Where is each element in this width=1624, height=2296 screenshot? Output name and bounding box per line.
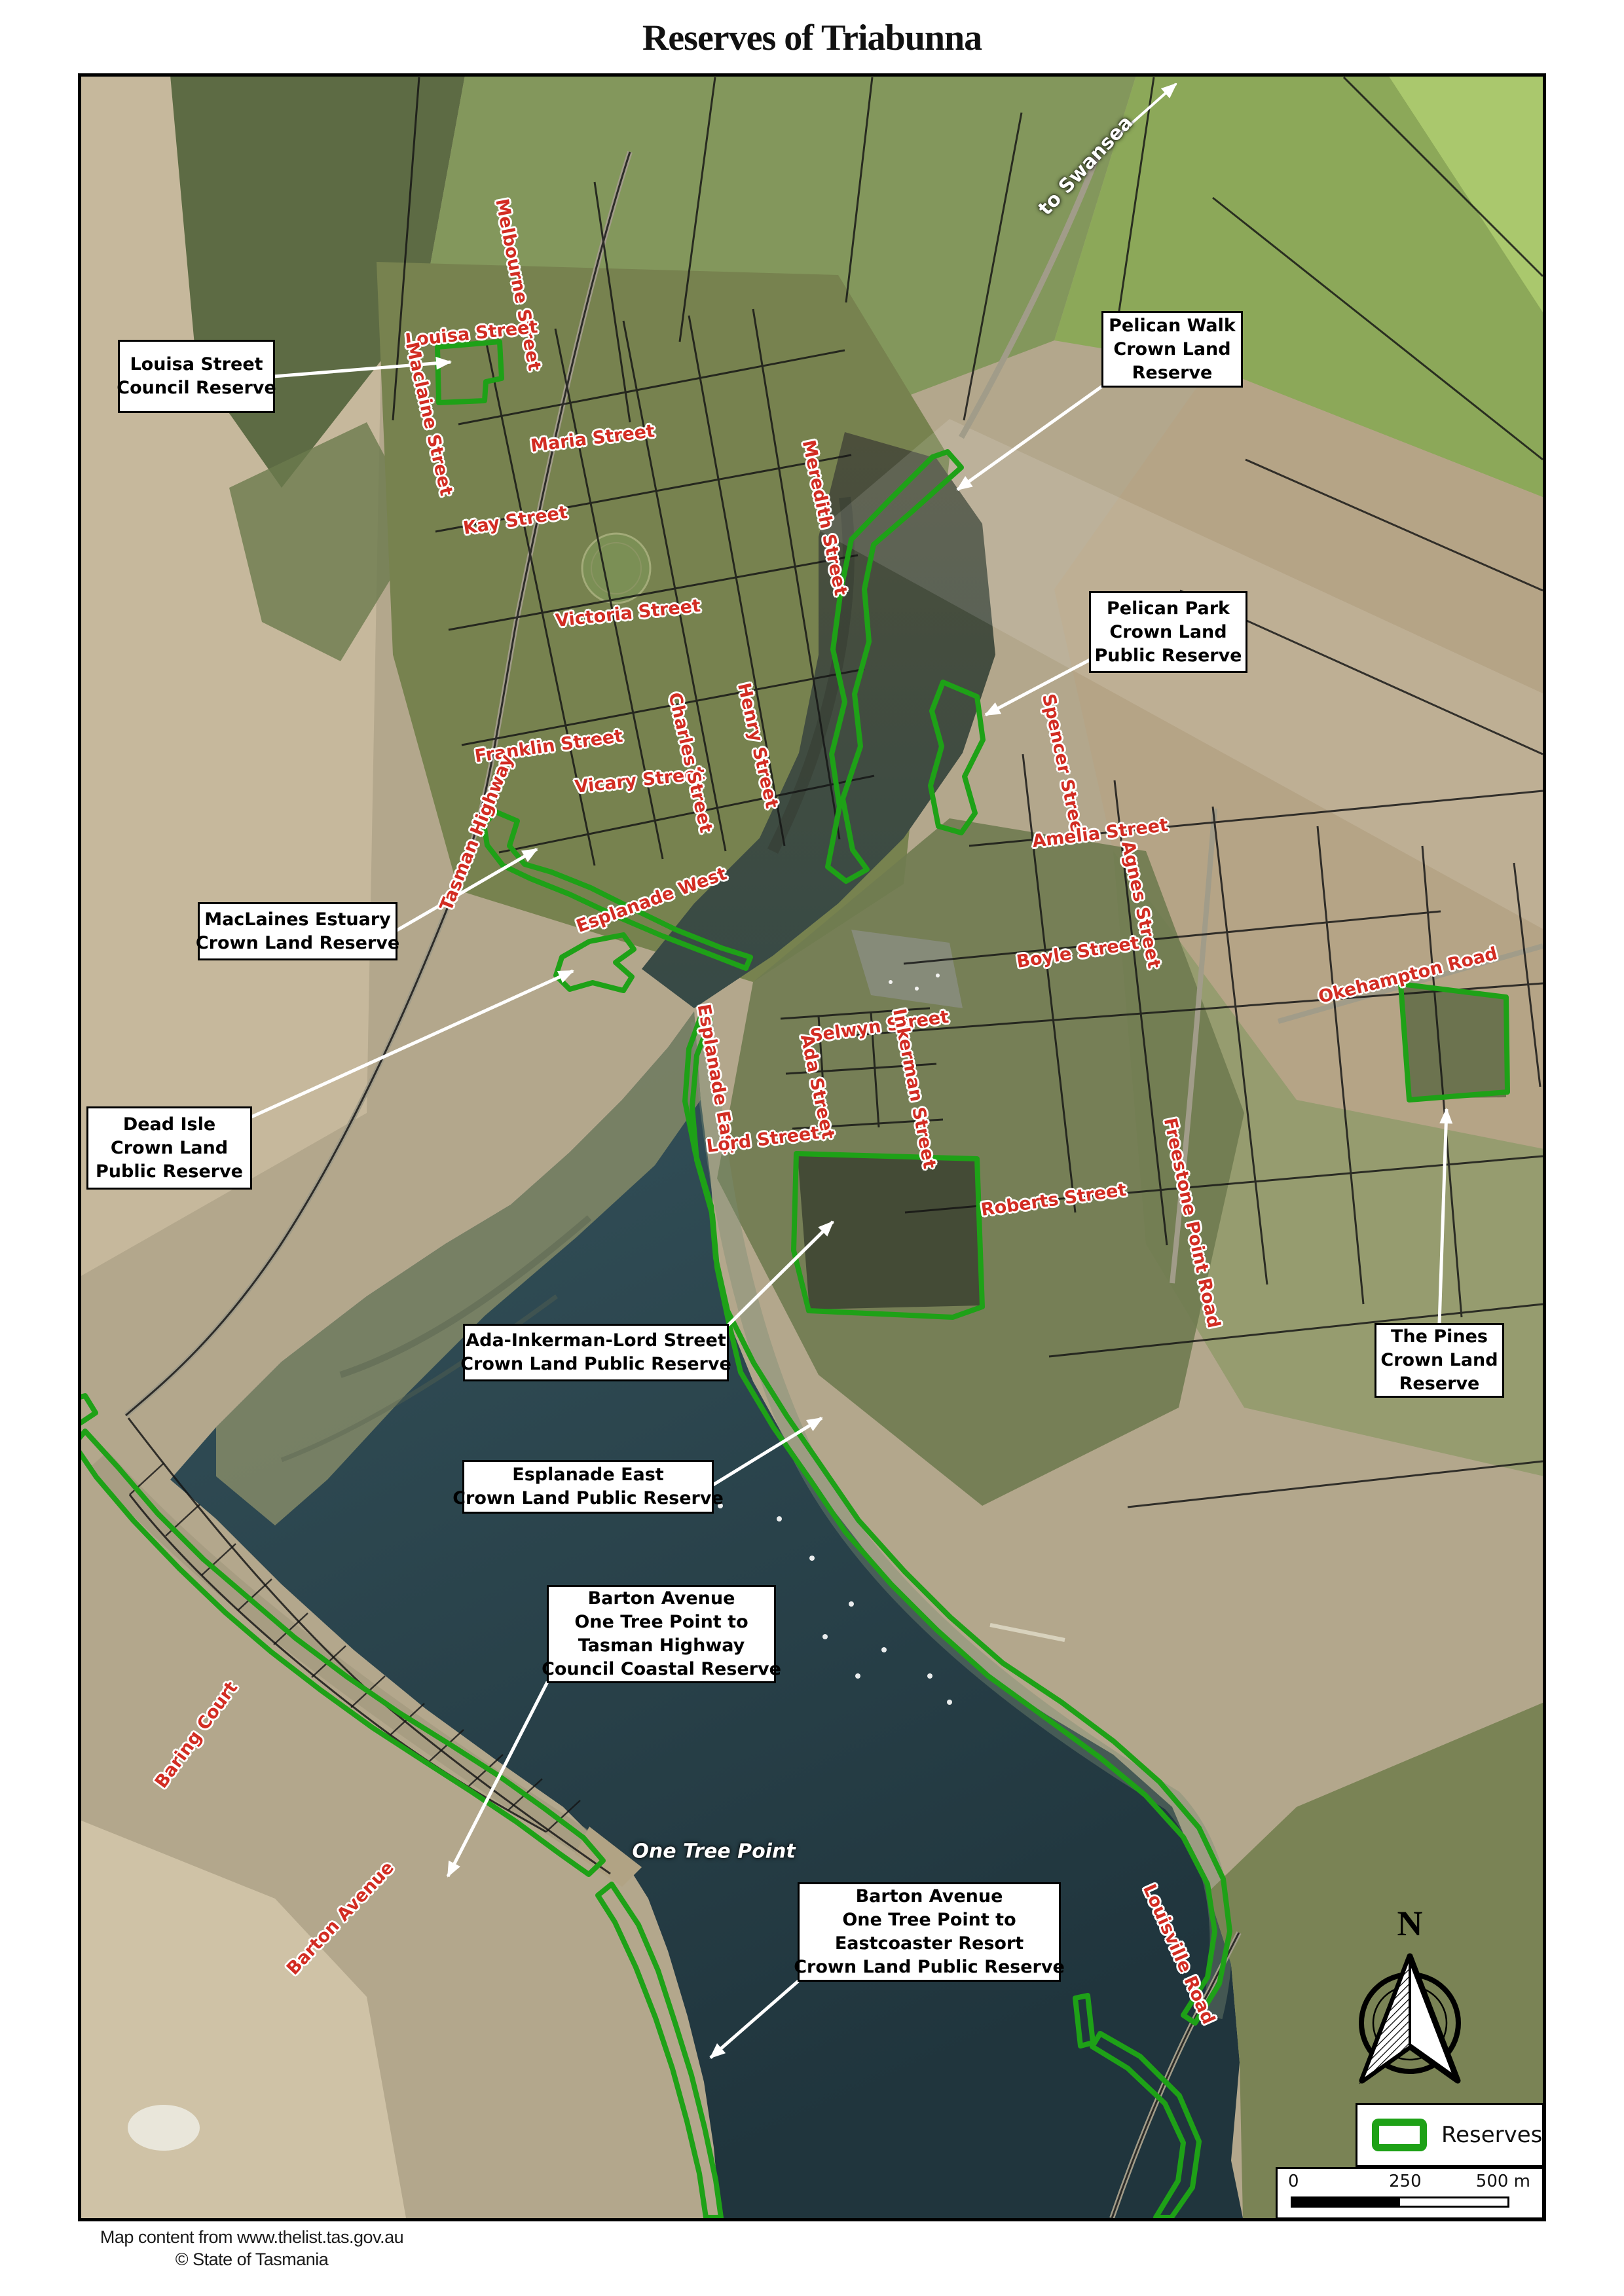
map-page: Reserves of Triabunna [0, 0, 1624, 2296]
reserve-swatch-icon [1372, 2119, 1427, 2151]
callout-the-pines: The Pines Crown Land Reserve [1375, 1323, 1504, 1398]
callout-louisa-street-council-reserve: Louisa Street Council Reserve [118, 340, 275, 413]
callout-barton-eastcoaster: Barton Avenue One Tree Point to Eastcoas… [798, 1882, 1061, 1982]
one-tree-point-label: One Tree Point [632, 1840, 795, 1863]
north-label: N [1397, 1903, 1423, 1944]
attribution-line-1: Map content from www.thelist.tas.gov.au [73, 2226, 430, 2248]
callout-barton-tasman: Barton Avenue One Tree Point to Tasman H… [547, 1585, 776, 1683]
callout-dead-isle: Dead Isle Crown Land Public Reserve [86, 1106, 252, 1190]
attribution-line-2: © State of Tasmania [73, 2248, 430, 2270]
scale-tick-0: 0 [1288, 2172, 1299, 2191]
callout-esplanade-east: Esplanade East Crown Land Public Reserve [462, 1460, 714, 1514]
legend-label: Reserves [1441, 2122, 1542, 2148]
scale-bar: 0 250 500 m [1276, 2167, 1544, 2219]
callout-maclaines-estuary: MacLaines Estuary Crown Land Reserve [198, 902, 397, 960]
page-title: Reserves of Triabunna [0, 17, 1624, 59]
callout-ada-inkerman-lord: Ada-Inkerman-Lord Street Crown Land Publ… [463, 1324, 729, 1381]
callout-pelican-park: Pelican Park Crown Land Public Reserve [1089, 591, 1247, 673]
scale-bar-graphic [1291, 2196, 1509, 2208]
legend: Reserves [1356, 2103, 1544, 2167]
scale-tick-500: 500 m [1476, 2172, 1530, 2191]
attribution: Map content from www.thelist.tas.gov.au … [73, 2226, 430, 2270]
scale-tick-250: 250 [1389, 2172, 1422, 2191]
callout-pelican-walk: Pelican Walk Crown Land Reserve [1101, 311, 1243, 388]
